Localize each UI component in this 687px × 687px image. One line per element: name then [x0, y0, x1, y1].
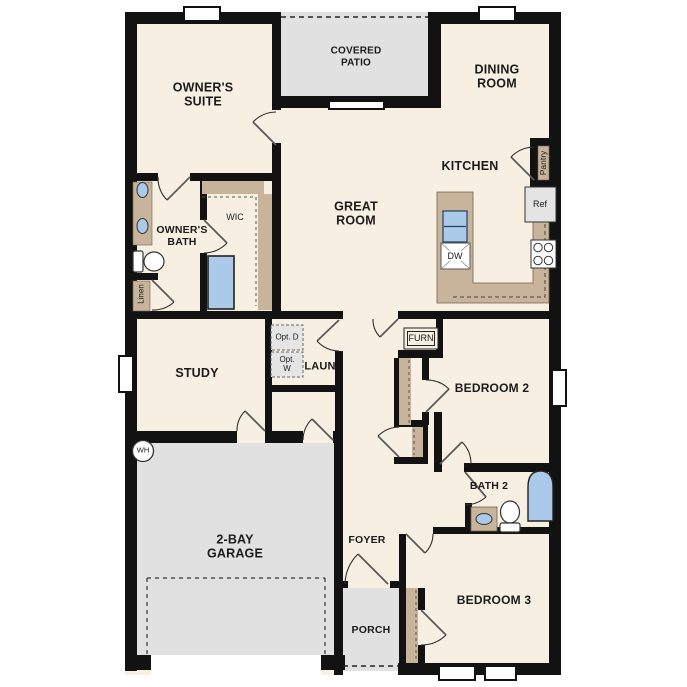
bath2-sink-icon	[471, 507, 497, 531]
kitchen-sink-icon	[443, 211, 467, 242]
room-label-kitchen: KITCHEN	[442, 159, 499, 173]
bath2-toilet-icon	[500, 501, 520, 532]
bedroom3-closet-shelf	[406, 588, 418, 663]
shower-icon	[208, 256, 234, 309]
bedroom2-closet-shelf	[399, 358, 411, 425]
feature-label-opt-d: Opt. D	[275, 332, 299, 341]
room-label-owners-suite: OWNER'S SUITE	[161, 81, 245, 110]
room-label-porch: PORCH	[352, 624, 391, 636]
feature-label-opt-w: Opt. W	[275, 355, 299, 373]
feature-label-ref: Ref	[533, 199, 547, 209]
room-label-covered-patio: COVERED PATIO	[323, 46, 389, 69]
room-label-wic: WIC	[226, 212, 244, 222]
room-label-bedroom-3: BEDROOM 3	[457, 594, 531, 608]
hall-closet-shelf	[412, 427, 423, 457]
floor-plan: OWNER'S SUITE COVERED PATIO DINING ROOM …	[0, 0, 687, 687]
garage-door-dashed	[147, 578, 325, 655]
fixtures-and-doors-layer	[0, 0, 687, 687]
owners-bath-toilet-icon	[133, 251, 164, 272]
feature-label-dw: DW	[447, 251, 464, 261]
feature-label-pantry: Pantry	[539, 151, 549, 176]
room-label-great-room: GREAT ROOM	[324, 200, 388, 229]
feature-label-wh: WH	[137, 447, 150, 456]
bathtub-icon	[528, 471, 553, 521]
room-label-bath-2: BATH 2	[468, 480, 510, 492]
room-label-garage: 2-BAY GARAGE	[193, 533, 277, 562]
room-label-dining-room: DINING ROOM	[459, 63, 535, 92]
feature-label-linen: Linen	[136, 284, 145, 304]
room-label-bedroom-2: BEDROOM 2	[455, 382, 529, 396]
feature-label-furn: FURN	[409, 333, 434, 343]
stove-icon	[531, 240, 556, 268]
room-label-study: STUDY	[175, 366, 218, 380]
room-label-foyer: FOYER	[348, 534, 385, 546]
room-label-laundry: LAUN	[304, 361, 335, 374]
room-label-owners-bath: OWNER'S BATH	[145, 224, 219, 248]
